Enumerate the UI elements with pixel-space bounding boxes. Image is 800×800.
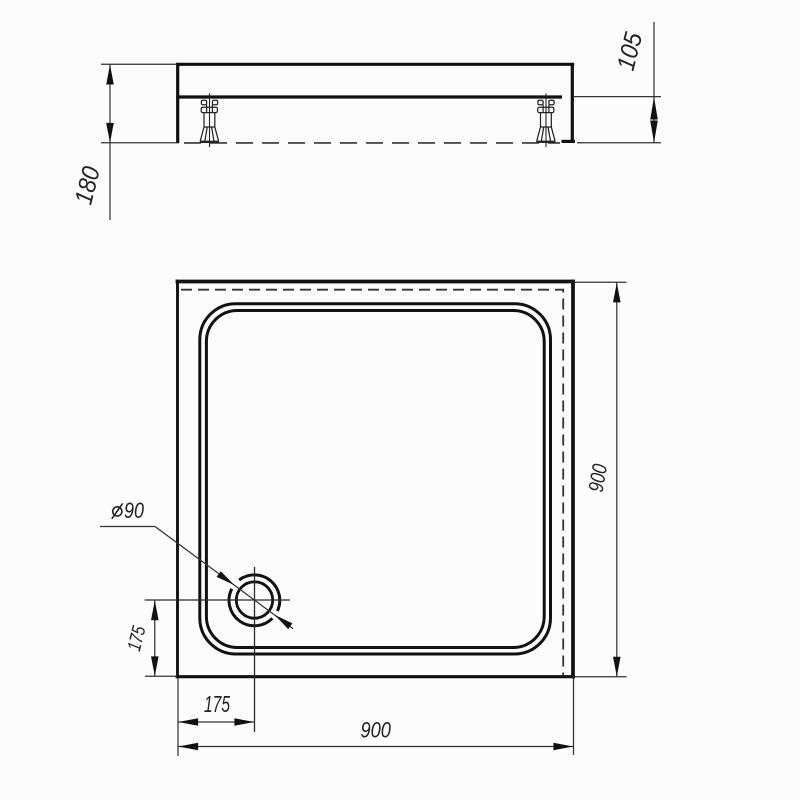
svg-text:90: 90: [124, 498, 145, 523]
svg-text:900: 900: [360, 718, 391, 743]
svg-text:900: 900: [585, 462, 613, 494]
svg-text:175: 175: [204, 691, 230, 717]
